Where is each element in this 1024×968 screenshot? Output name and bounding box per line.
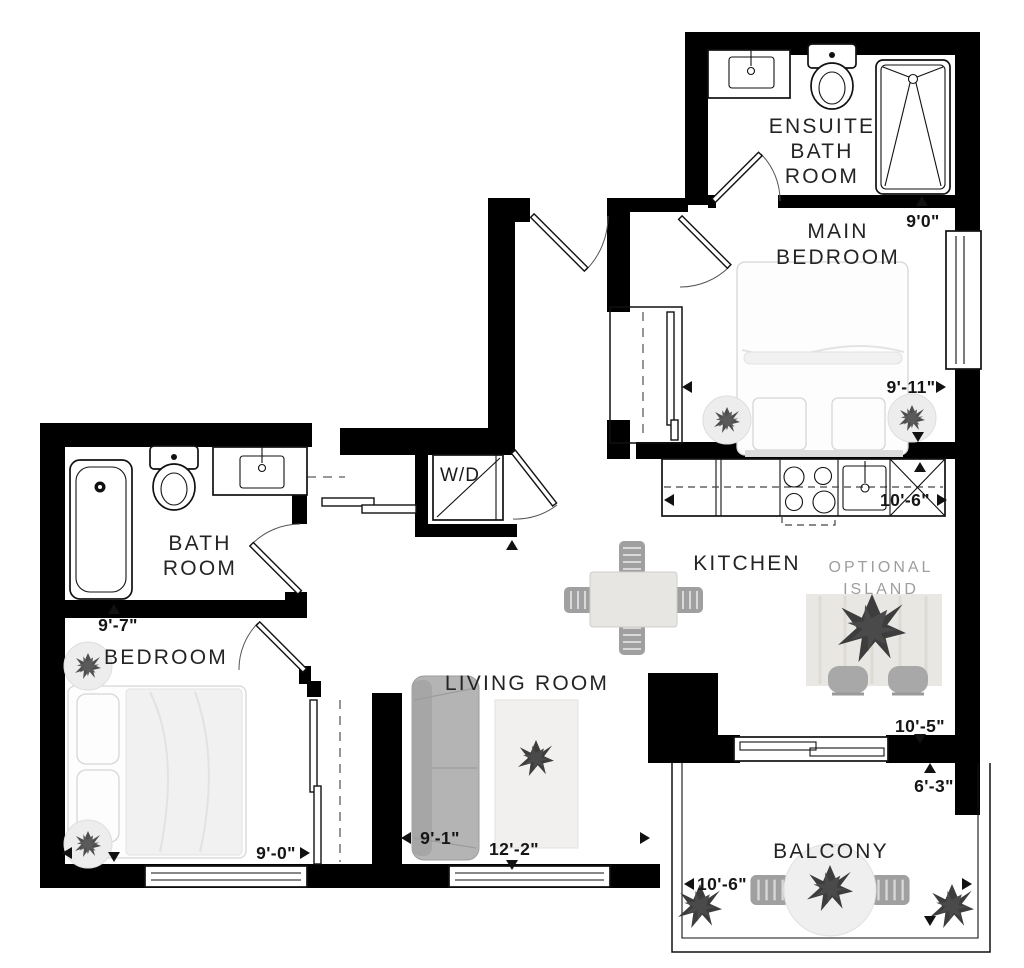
ensuite-label-line3: ROOM bbox=[785, 165, 859, 188]
balcony-label: BALCONY bbox=[773, 840, 889, 863]
main-bedroom-window bbox=[946, 231, 981, 369]
washer-dryer: W/D bbox=[433, 455, 503, 520]
optional-island-label-line1: OPTIONAL bbox=[829, 559, 934, 576]
ensuite-toilet bbox=[808, 44, 856, 109]
svg-text:9'0": 9'0" bbox=[906, 211, 940, 231]
balcony-sliding-door bbox=[734, 737, 888, 761]
main-bedroom-label-line2: BEDROOM bbox=[776, 246, 900, 269]
bedroom-label: BEDROOM bbox=[104, 646, 228, 669]
svg-text:9'-1": 9'-1" bbox=[420, 828, 460, 848]
svg-text:10'-5": 10'-5" bbox=[895, 716, 945, 736]
living-room-label: LIVING ROOM bbox=[445, 672, 609, 695]
optional-island bbox=[806, 594, 942, 694]
optional-island-label-line2: ISLAND bbox=[843, 581, 919, 598]
bedroom-door bbox=[239, 622, 306, 672]
ensuite-label-line1: ENSUITE bbox=[769, 115, 875, 138]
kitchen-label: KITCHEN bbox=[693, 552, 801, 575]
bathroom-door bbox=[250, 524, 302, 594]
ensuite-door bbox=[712, 152, 780, 202]
dining-table bbox=[564, 541, 703, 655]
svg-text:9'-11": 9'-11" bbox=[887, 377, 936, 397]
floor-plan: W/D bbox=[0, 0, 1024, 968]
plant-main-bedroom-left bbox=[703, 396, 751, 444]
living-room-window bbox=[449, 866, 610, 887]
floor-plan-page: W/D bbox=[0, 0, 1024, 968]
svg-text:6'-3": 6'-3" bbox=[914, 776, 954, 796]
bedroom-window bbox=[145, 866, 307, 887]
ensuite-label-line2: BATH bbox=[790, 140, 853, 163]
svg-text:12'-2": 12'-2" bbox=[489, 839, 539, 859]
hall-door bbox=[679, 216, 731, 287]
shower bbox=[876, 60, 950, 194]
svg-text:10'-6": 10'-6" bbox=[880, 490, 930, 510]
bathroom-sink bbox=[213, 447, 307, 495]
washer-dryer-door bbox=[511, 450, 557, 519]
hall-closet bbox=[307, 477, 416, 513]
washer-dryer-label: W/D bbox=[440, 465, 480, 486]
bathroom-toilet bbox=[150, 446, 198, 510]
svg-text:9'-7": 9'-7" bbox=[98, 615, 138, 635]
main-bedroom-label-line1: MAIN bbox=[807, 220, 868, 243]
svg-text:10'-6": 10'-6" bbox=[697, 874, 747, 894]
plant-bedroom-bottom bbox=[64, 820, 112, 868]
svg-text:9'-0": 9'-0" bbox=[256, 843, 296, 863]
main-bedroom-bed bbox=[737, 262, 908, 457]
bathroom-label-line2: ROOM bbox=[163, 557, 237, 580]
entry-door bbox=[531, 214, 608, 271]
ensuite-sink bbox=[708, 50, 790, 98]
plant-balcony-right bbox=[930, 884, 974, 928]
living-room-rug bbox=[495, 700, 578, 848]
plant-main-bedroom-right bbox=[888, 394, 936, 442]
bathroom-label-line1: BATH bbox=[168, 532, 231, 555]
living-room-closet bbox=[310, 700, 340, 864]
bathtub bbox=[70, 460, 132, 599]
